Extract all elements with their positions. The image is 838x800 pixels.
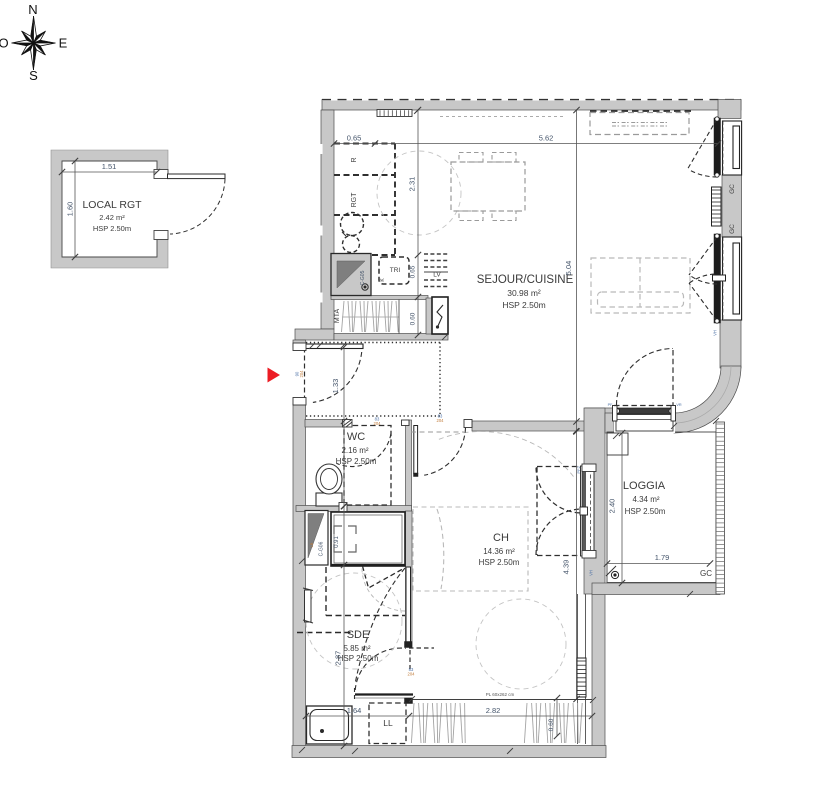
- svg-text:204: 204: [437, 418, 445, 423]
- svg-text:S: S: [29, 68, 38, 83]
- svg-text:TRI: TRI: [390, 267, 401, 274]
- svg-text:E: E: [59, 36, 68, 51]
- svg-text:LV: LV: [433, 272, 441, 279]
- svg-text:204: 204: [299, 370, 304, 378]
- svg-text:R: R: [351, 157, 358, 162]
- svg-text:5.85 m²: 5.85 m²: [343, 644, 370, 653]
- svg-text:204: 204: [374, 421, 382, 426]
- svg-text:LOCAL RGT: LOCAL RGT: [82, 199, 142, 211]
- svg-text:O: O: [0, 36, 9, 51]
- svg-text:0.91: 0.91: [334, 536, 340, 548]
- svg-text:PL 60x262 cm: PL 60x262 cm: [486, 692, 515, 697]
- svg-text:2.87: 2.87: [334, 651, 343, 666]
- svg-text:C-G05: C-G05: [360, 270, 366, 285]
- svg-text:4.39: 4.39: [562, 560, 571, 575]
- svg-text:204: 204: [408, 672, 416, 677]
- svg-text:HSP 2.50m: HSP 2.50m: [502, 300, 545, 310]
- svg-text:VR: VR: [676, 403, 682, 407]
- svg-text:30.98 m²: 30.98 m²: [507, 288, 541, 298]
- svg-text:0.65: 0.65: [410, 265, 417, 278]
- svg-text:1.51: 1.51: [102, 162, 117, 171]
- svg-text:HSP 2.50m: HSP 2.50m: [336, 457, 377, 466]
- svg-text:HSP 2.50m: HSP 2.50m: [93, 224, 131, 233]
- svg-text:C-G06: C-G06: [319, 541, 325, 556]
- svg-text:1.33: 1.33: [331, 379, 340, 394]
- svg-text:5.04: 5.04: [564, 261, 573, 276]
- svg-text:1.64: 1.64: [347, 706, 362, 715]
- svg-text:PF2: PF2: [576, 466, 581, 474]
- svg-text:1.60: 1.60: [66, 202, 75, 217]
- svg-text:0.65: 0.65: [347, 134, 362, 143]
- svg-text:N: N: [28, 2, 37, 17]
- svg-text:5.62: 5.62: [539, 134, 554, 143]
- svg-text:WC: WC: [347, 431, 365, 443]
- svg-text:GC: GC: [729, 184, 736, 194]
- svg-text:SEJOUR/CUISINE: SEJOUR/CUISINE: [477, 274, 574, 286]
- svg-text:VH: VH: [589, 570, 594, 576]
- svg-text:1.79: 1.79: [655, 553, 670, 562]
- svg-text:CH: CH: [493, 532, 509, 544]
- svg-text:LL: LL: [383, 718, 393, 728]
- svg-text:MTA: MTA: [334, 309, 341, 324]
- svg-text:LOGGIA: LOGGIA: [623, 480, 666, 492]
- svg-text:0.60: 0.60: [410, 312, 417, 325]
- svg-text:0.60: 0.60: [548, 718, 555, 731]
- svg-text:4.34 m²: 4.34 m²: [632, 495, 659, 504]
- svg-text:GC: GC: [729, 224, 736, 234]
- svg-text:PF: PF: [608, 403, 614, 407]
- svg-text:14.36 m²: 14.36 m²: [483, 547, 515, 556]
- svg-text:GC: GC: [700, 569, 712, 578]
- svg-text:RGT: RGT: [351, 192, 358, 208]
- svg-text:2.16 m²: 2.16 m²: [341, 446, 368, 455]
- svg-text:VH: VH: [713, 330, 718, 336]
- svg-text:LB: LB: [309, 542, 314, 547]
- svg-text:HSP 2.50m: HSP 2.50m: [479, 558, 520, 567]
- svg-text:HSP 2.50m: HSP 2.50m: [625, 507, 666, 516]
- svg-text:2.31: 2.31: [408, 177, 417, 192]
- svg-text:2.42 m²: 2.42 m²: [99, 213, 125, 222]
- svg-text:2.82: 2.82: [486, 706, 501, 715]
- svg-text:2.40: 2.40: [608, 499, 617, 514]
- svg-text:SDE: SDE: [347, 629, 370, 641]
